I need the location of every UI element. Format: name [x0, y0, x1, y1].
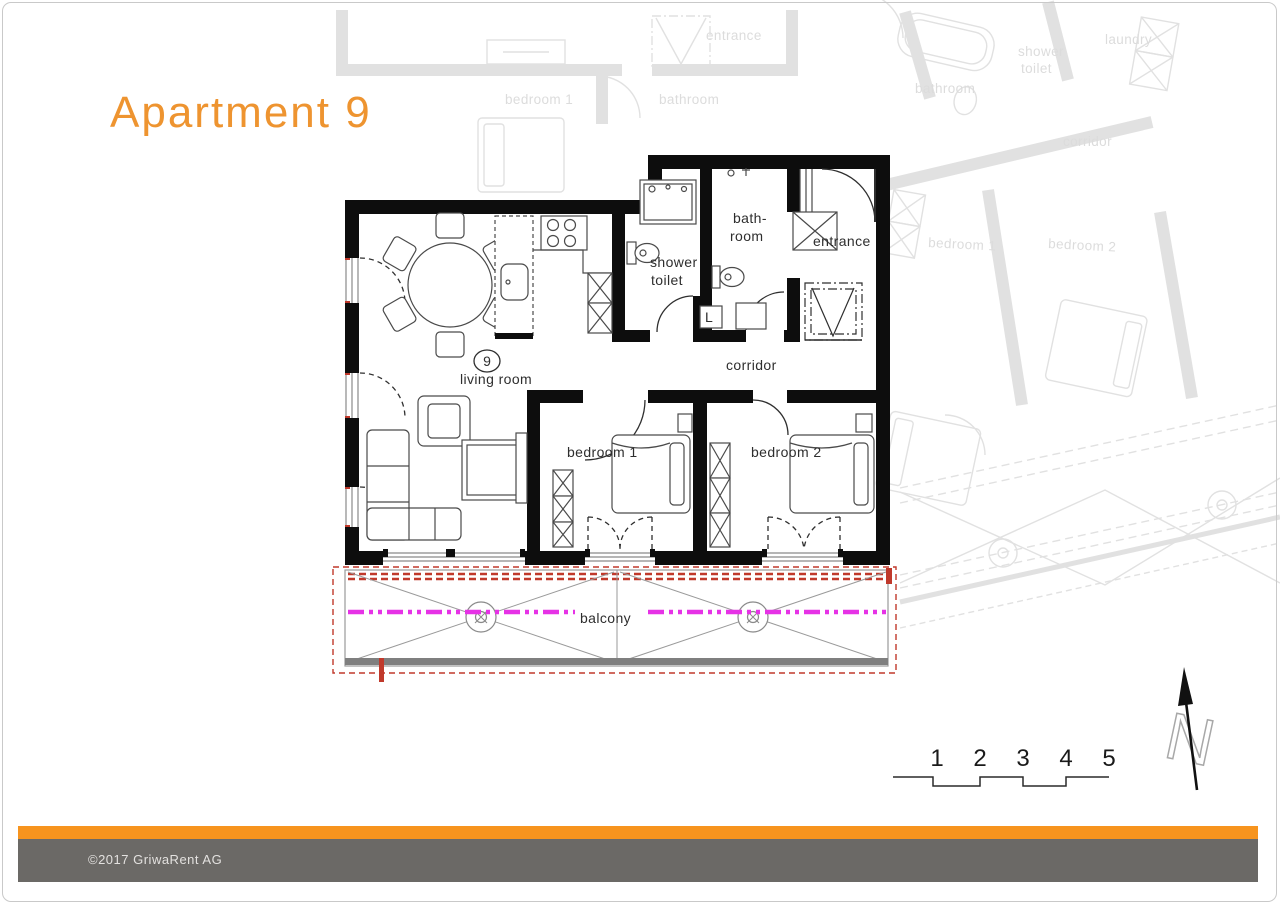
bed2-pillow	[854, 443, 868, 505]
north-arrow-head	[1178, 667, 1193, 706]
bg-label-bedroom2-right: bedroom 2	[1048, 236, 1117, 255]
balcony-area: balcony	[333, 567, 896, 682]
bathroom-label-2: room	[730, 228, 764, 244]
bg-label-entrance-top: entrance	[706, 28, 762, 43]
scale-4: 4	[1059, 745, 1072, 772]
north-arrow: N	[1159, 667, 1221, 790]
scale-bar: 1 2 3 4 5	[893, 745, 1116, 786]
bed1-nightstand	[678, 414, 692, 432]
bedroom1-furniture	[516, 414, 692, 547]
scale-1: 1	[930, 745, 943, 772]
bathroom-label-1: bath-	[733, 210, 767, 226]
scale-5: 5	[1102, 745, 1115, 772]
scale-2: 2	[973, 745, 986, 772]
unit-number: 9	[483, 353, 491, 369]
dining-table	[408, 243, 492, 327]
bedroom2-furniture	[710, 414, 874, 547]
bg-label-laundry-right: laundry	[1105, 32, 1152, 47]
footer-copyright: ©2017 GriwaRent AG	[88, 852, 222, 867]
stove	[541, 216, 587, 250]
laundry-label: L	[705, 309, 713, 325]
corridor-cabinet	[736, 303, 766, 329]
bed1-pillow	[670, 443, 684, 505]
kitchen-sink	[501, 264, 528, 300]
bg-label-bedroom1-right: bedroom 1	[928, 235, 997, 254]
bed2-nightstand	[856, 414, 872, 432]
shower-label-2: toilet	[651, 272, 683, 288]
bg-label-bedroom1-top: bedroom 1	[505, 92, 573, 107]
elevator-shaft	[805, 283, 862, 340]
corridor-label: corridor	[726, 357, 777, 373]
sofa-horizontal	[367, 508, 461, 540]
bg-label-bathroom-top: bathroom	[659, 92, 719, 107]
bg-label-toilet-right: toilet	[1021, 61, 1052, 76]
shower-label-1: shower	[650, 254, 698, 270]
footer-orange-bar	[18, 826, 1258, 839]
living-room-label: living room	[460, 371, 532, 387]
living-seating	[367, 396, 524, 540]
bedroom2-label: bedroom 2	[751, 444, 822, 460]
page-title: Apartment 9	[110, 88, 372, 138]
scale-3: 3	[1016, 745, 1029, 772]
bg-label-bathroom-right: bathroom	[915, 81, 975, 96]
bg-label-shower-right: shower	[1018, 44, 1064, 59]
balcony-label: balcony	[580, 610, 631, 626]
entrance-label: entrance	[813, 233, 871, 249]
kitchen	[495, 216, 612, 339]
shower-toilet-fixtures	[627, 180, 696, 264]
bedroom1-label: bedroom 1	[567, 444, 638, 460]
floorplan-page: bedroom 1 bathroom entrance bathroom sho…	[0, 0, 1280, 905]
toilet2-cistern	[712, 266, 720, 288]
toilet2-bowl	[720, 268, 744, 287]
bg-label-corridor-right: corridor	[1063, 134, 1112, 149]
